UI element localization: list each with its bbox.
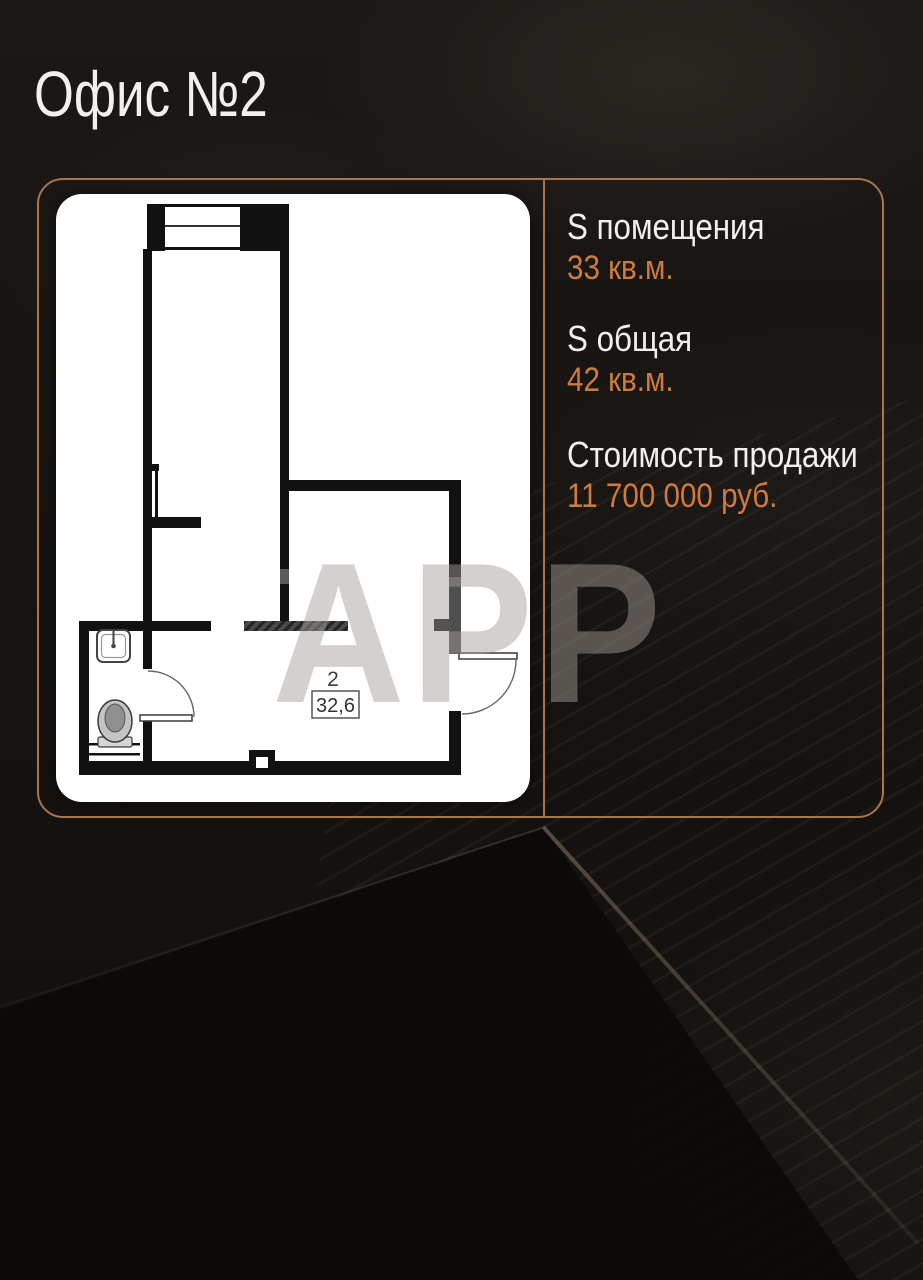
bathroom-door	[140, 671, 194, 721]
total-area-value: 42 кв.м.	[567, 360, 692, 400]
panel-divider-line	[543, 178, 545, 818]
price-value: 11 700 000 руб.	[567, 476, 858, 516]
area-label: S помещения	[567, 206, 765, 248]
sink-icon	[97, 630, 130, 662]
watermark: APP	[272, 534, 667, 734]
info-block-total-area: S общая 42 кв.м.	[567, 318, 692, 400]
area-value: 33 кв.м.	[567, 248, 765, 288]
info-block-price: Стоимость продажи 11 700 000 руб.	[567, 434, 858, 516]
toilet-icon	[89, 700, 140, 756]
plan-top-shaft	[147, 204, 289, 251]
total-area-label: S общая	[567, 318, 692, 360]
info-block-area: S помещения 33 кв.м.	[567, 206, 765, 288]
page-title: Офис №2	[34, 62, 268, 126]
price-label: Стоимость продажи	[567, 434, 858, 476]
